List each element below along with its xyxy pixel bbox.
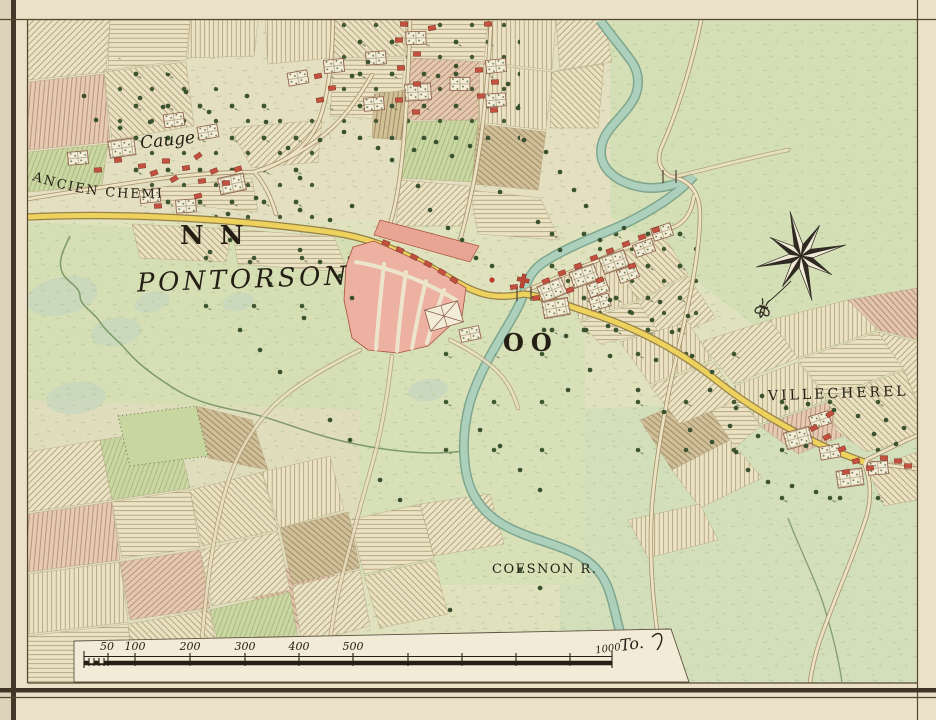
scale-tick-50: 50	[100, 640, 114, 653]
scale-end-unit: To.	[619, 633, 645, 655]
label-oo: OO	[503, 328, 559, 357]
scale-tick-100: 100	[125, 640, 146, 653]
label-coesnon: COESNON R.	[492, 562, 597, 577]
scale-tick-400: 400	[288, 640, 310, 653]
scale-tick-500: 500	[343, 640, 364, 653]
paper-left-edge	[0, 0, 11, 720]
label-nn: NN	[180, 221, 260, 251]
scale-tick-300: 300	[235, 640, 256, 653]
wayside-cross-marker	[489, 277, 494, 282]
scale-tick-200: 200	[179, 640, 201, 653]
map-sheet: ANCIEN CHEMIN Cauge NN PONTORSON OO VILL…	[0, 0, 936, 720]
map-content: ANCIEN CHEMIN Cauge NN PONTORSON OO VILL…	[0, 0, 918, 683]
